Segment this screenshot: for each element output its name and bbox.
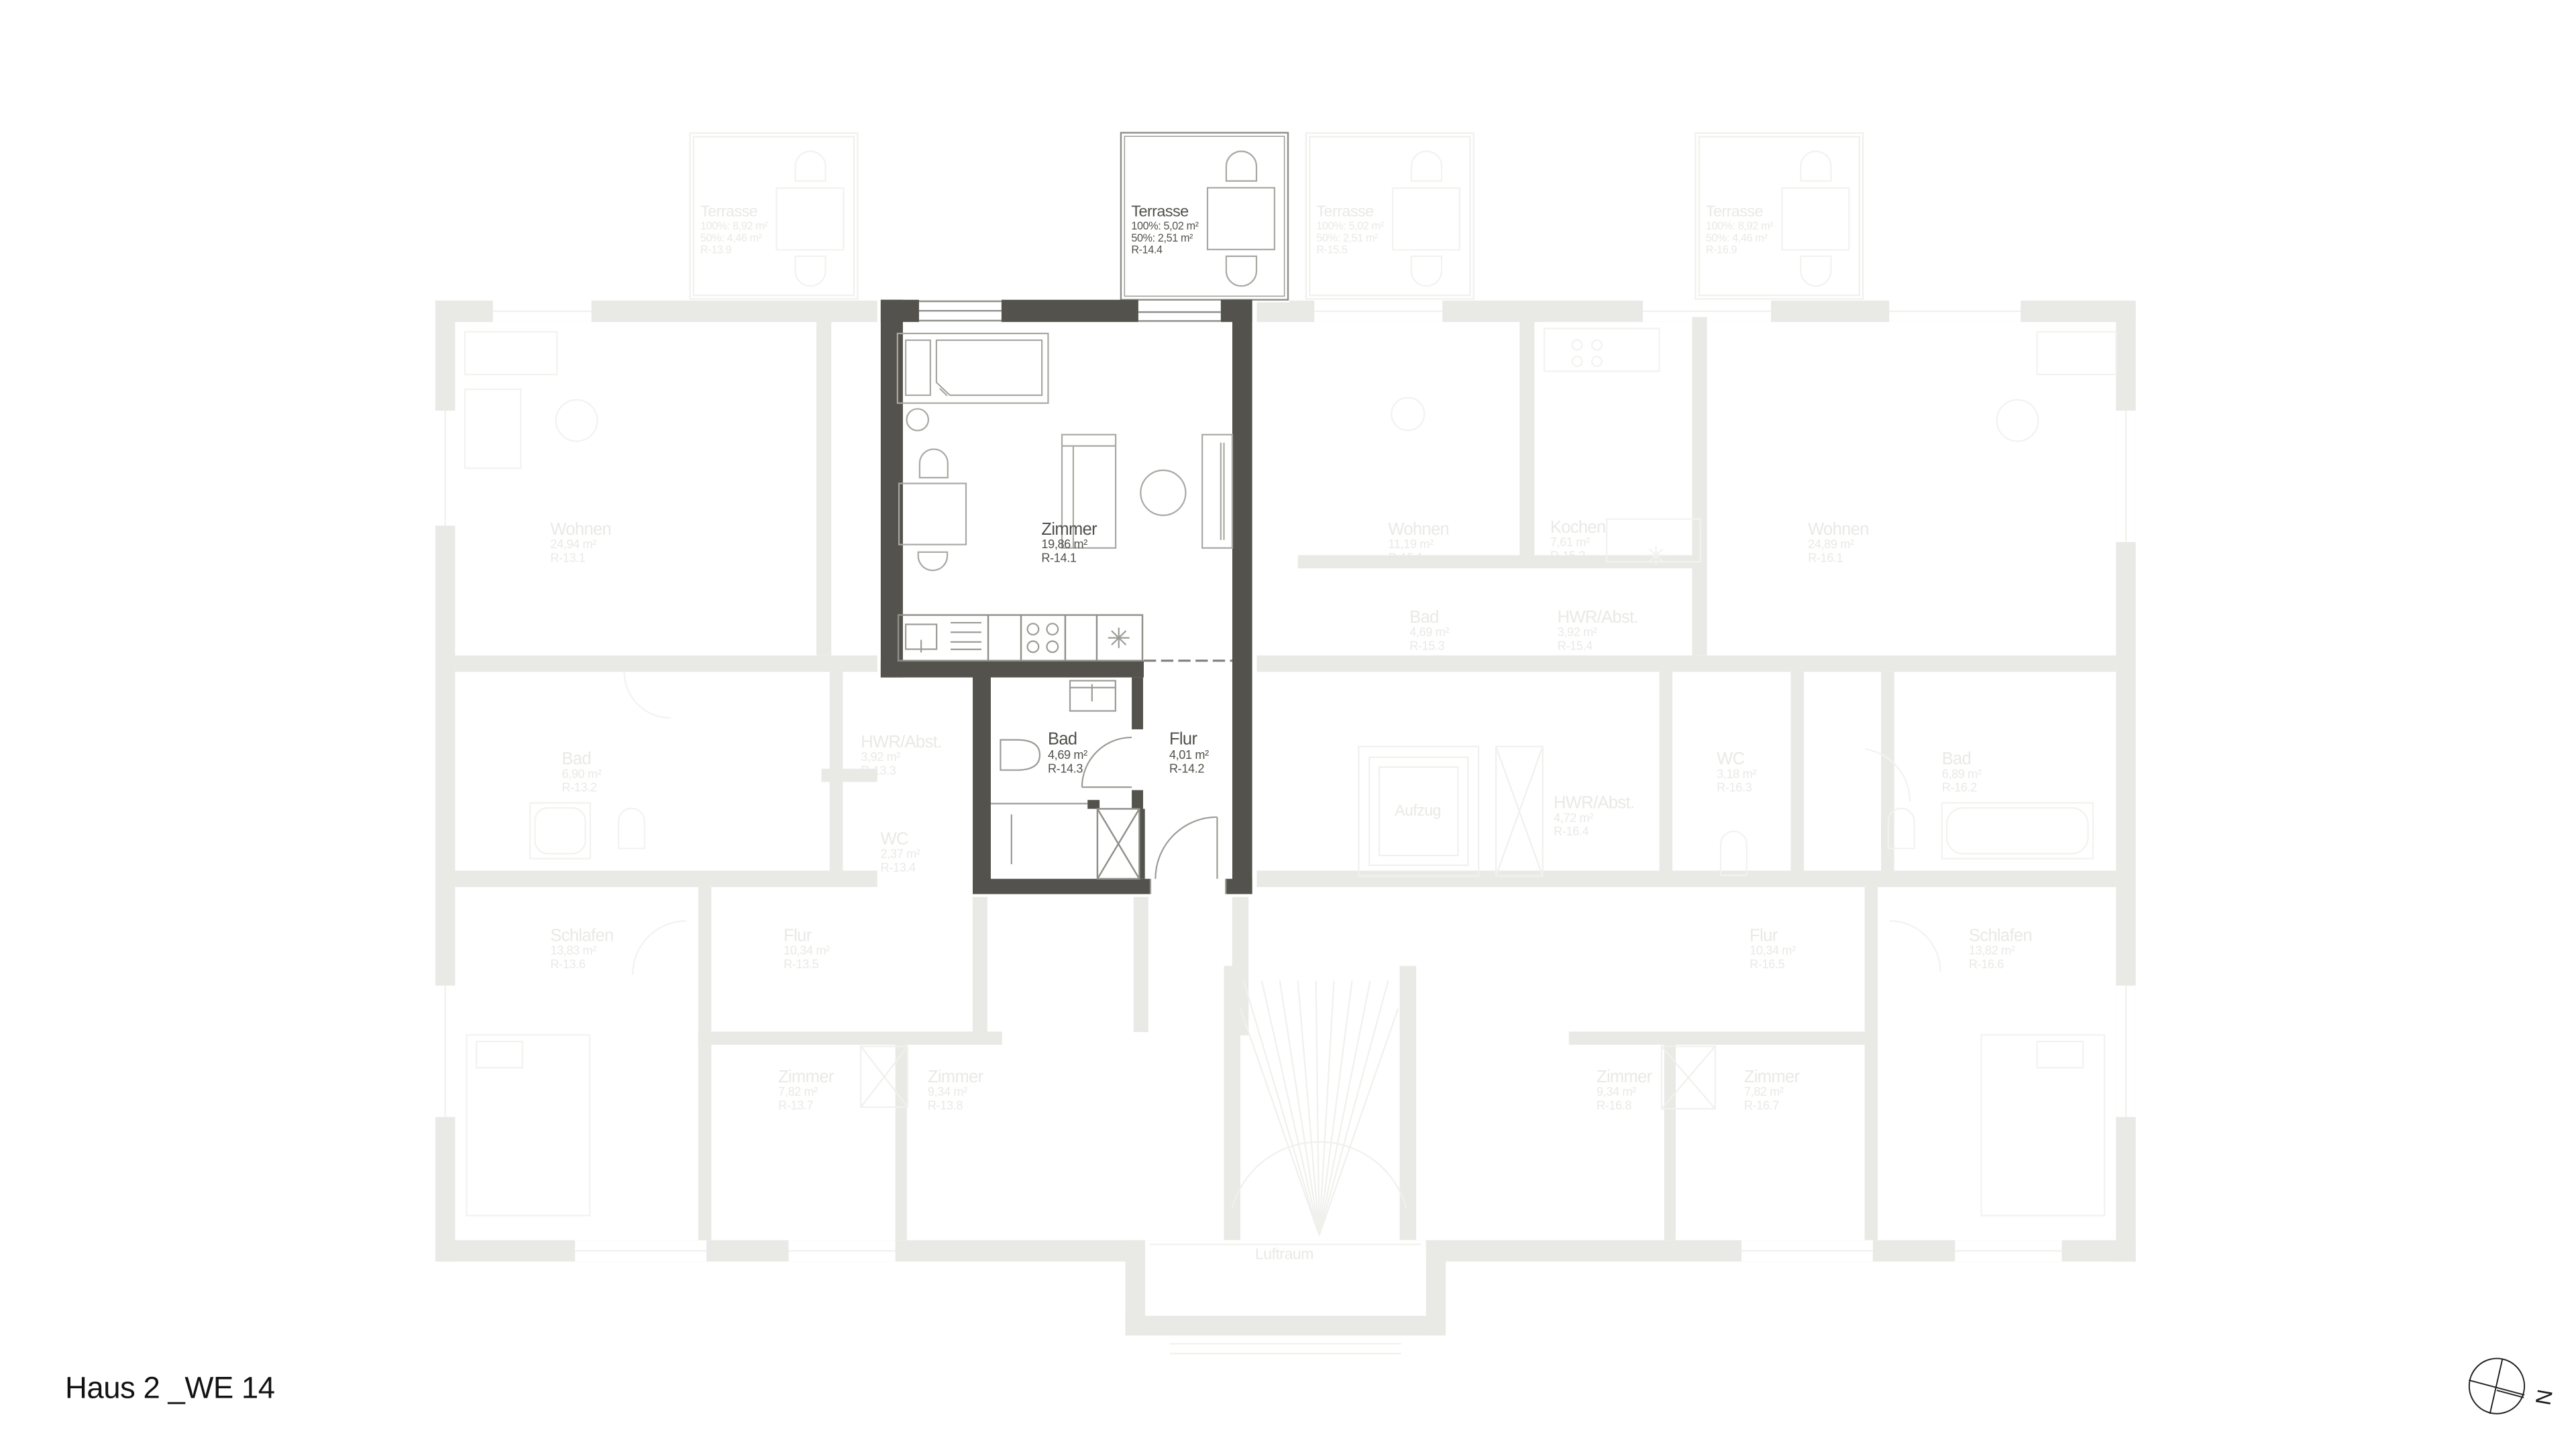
label-hwr-center: HWR/Abst. — [1558, 608, 1638, 627]
label-bad-right: R-16.2 — [1942, 781, 1977, 794]
label-aufzug: Aufzug — [1395, 801, 1441, 819]
label-schlafen-left: Schlafen — [550, 926, 613, 945]
label-wohnen-left: R-13.1 — [550, 551, 585, 564]
label-bad-we14: 4,69 m² — [1048, 748, 1087, 762]
label-terrasse-right: R-16.9 — [1706, 244, 1737, 256]
compass-icon: N — [2469, 1359, 2557, 1414]
label-bad-left: Bad — [562, 749, 591, 768]
label-hwr-left: 3,92 m² — [861, 750, 900, 764]
label-terrasse-we14: Terrasse — [1131, 203, 1189, 220]
north-label: N — [2531, 1388, 2557, 1407]
label-zimmer-left1: 7,82 m² — [778, 1085, 818, 1098]
label-luftraum: Luftraum — [1255, 1245, 1313, 1262]
background-plan — [435, 133, 2136, 1353]
label-wohnen-left: Wohnen — [550, 520, 611, 539]
label-bad-center: R-15.3 — [1409, 639, 1444, 652]
label-wc-right: R-16.3 — [1717, 781, 1752, 794]
label-terrasse-right: Terrasse — [1706, 203, 1764, 220]
label-zimmer-we14: Zimmer — [1041, 520, 1097, 539]
label-schlafen-right: Schlafen — [1969, 926, 2032, 945]
label-terrasse-we14: 50%: 2,51 m² — [1131, 232, 1193, 244]
floor-plan: Terrasse100%: 5,02 m²50%: 2,51 m²R-14.4Z… — [0, 0, 2576, 1448]
label-flur-left: Flur — [784, 926, 812, 945]
label-flur-right: 10,34 m² — [1750, 944, 1796, 958]
label-wohnen-right: R-16.1 — [1808, 551, 1843, 564]
label-zimmer-left2: R-13.8 — [928, 1098, 963, 1112]
label-kochen-center: Kochen — [1550, 518, 1606, 537]
label-hwr-right: 4,72 m² — [1554, 811, 1593, 825]
label-wohnen-right: Wohnen — [1808, 520, 1869, 539]
label-terrasse-left: 50%: 4,46 m² — [700, 232, 763, 244]
background-windows — [435, 301, 2136, 1261]
label-zimmer-right2: 7,82 m² — [1744, 1085, 1784, 1098]
label-terrasse-left: R-13.9 — [700, 244, 732, 256]
label-schlafen-right: 13,82 m² — [1969, 944, 2015, 958]
label-terrasse-we14: R-14.4 — [1131, 244, 1163, 256]
label-bad-left: R-13.2 — [562, 781, 597, 794]
label-bad-center: Bad — [1409, 608, 1438, 627]
background-interior-walls — [455, 317, 2116, 1240]
label-bad-left: 6,90 m² — [562, 767, 602, 780]
label-hwr-right: R-16.4 — [1554, 825, 1589, 838]
label-zimmer-right1: R-16.8 — [1597, 1098, 1631, 1112]
label-flur-left: R-13.5 — [784, 958, 818, 971]
label-schlafen-right: R-16.6 — [1969, 958, 2004, 971]
label-wohnen-left: 24,94 m² — [550, 537, 596, 551]
label-terrasse-center: 50%: 2,51 m² — [1316, 232, 1379, 244]
label-wohnen-center: R-15.1 — [1388, 551, 1423, 564]
label-wc-left: 2,37 m² — [881, 847, 920, 861]
label-hwr-left: HWR/Abst. — [861, 733, 941, 752]
label-terrasse-right: 50%: 4,46 m² — [1706, 232, 1768, 244]
label-zimmer-right2: R-16.7 — [1744, 1098, 1779, 1112]
label-zimmer-right1: 9,34 m² — [1597, 1085, 1636, 1098]
label-bad-right: Bad — [1942, 749, 1971, 768]
label-flur-we14: 4,01 m² — [1169, 748, 1209, 762]
label-zimmer-left2: 9,34 m² — [928, 1085, 967, 1098]
label-terrasse-left: Terrasse — [700, 203, 758, 220]
label-bad-center: 4,69 m² — [1409, 625, 1449, 639]
label-zimmer-left1: R-13.7 — [778, 1098, 813, 1112]
label-wc-right: 3,18 m² — [1717, 767, 1756, 780]
label-terrasse-center: Terrasse — [1316, 203, 1374, 220]
label-wohnen-center: 11,19 m² — [1388, 537, 1434, 551]
label-wohnen-center: Wohnen — [1388, 520, 1449, 539]
label-wohnen-right: 24,89 m² — [1808, 537, 1854, 551]
label-bad-right: 6,89 m² — [1942, 767, 1982, 780]
label-wc-left: R-13.4 — [881, 861, 916, 874]
label-wc-left: WC — [881, 829, 908, 848]
label-zimmer-right1: Zimmer — [1597, 1068, 1653, 1086]
label-zimmer-we14: 19,86 m² — [1041, 537, 1087, 551]
label-zimmer-left2: Zimmer — [928, 1068, 984, 1086]
page-title: Haus 2 _WE 14 — [65, 1370, 275, 1404]
label-flur-right: R-16.5 — [1750, 958, 1784, 971]
labels-layer: Terrasse100%: 5,02 m²50%: 2,51 m²R-14.4Z… — [550, 203, 2032, 1263]
label-zimmer-we14: R-14.1 — [1041, 551, 1076, 564]
label-kochen-center: 7,61 m² — [1550, 535, 1590, 549]
label-terrasse-we14: 100%: 5,02 m² — [1131, 220, 1199, 232]
label-schlafen-left: R-13.6 — [550, 958, 585, 971]
label-flur-right: Flur — [1750, 926, 1778, 945]
label-zimmer-right2: Zimmer — [1744, 1068, 1801, 1086]
unit-mask — [877, 296, 1257, 897]
label-terrasse-right: 100%: 8,92 m² — [1706, 220, 1774, 232]
label-flur-left: 10,34 m² — [784, 944, 830, 958]
label-terrasse-center: R-15.5 — [1316, 244, 1348, 256]
label-hwr-center: R-15.4 — [1558, 639, 1593, 652]
label-hwr-center: 3,92 m² — [1558, 625, 1597, 639]
label-wc-right: WC — [1717, 749, 1744, 768]
label-hwr-right: HWR/Abst. — [1554, 793, 1634, 812]
label-bad-we14: Bad — [1048, 729, 1077, 748]
label-zimmer-left1: Zimmer — [778, 1068, 835, 1086]
label-flur-we14: Flur — [1169, 729, 1198, 748]
label-kochen-center: R-15.2 — [1550, 550, 1585, 563]
label-bad-we14: R-14.3 — [1048, 762, 1083, 775]
label-terrasse-left: 100%: 8,92 m² — [700, 220, 768, 232]
label-terrasse-center: 100%: 5,02 m² — [1316, 220, 1384, 232]
label-schlafen-left: 13,83 m² — [550, 944, 596, 958]
label-hwr-left: R-13.3 — [861, 764, 896, 778]
label-flur-we14: R-14.2 — [1169, 762, 1204, 775]
